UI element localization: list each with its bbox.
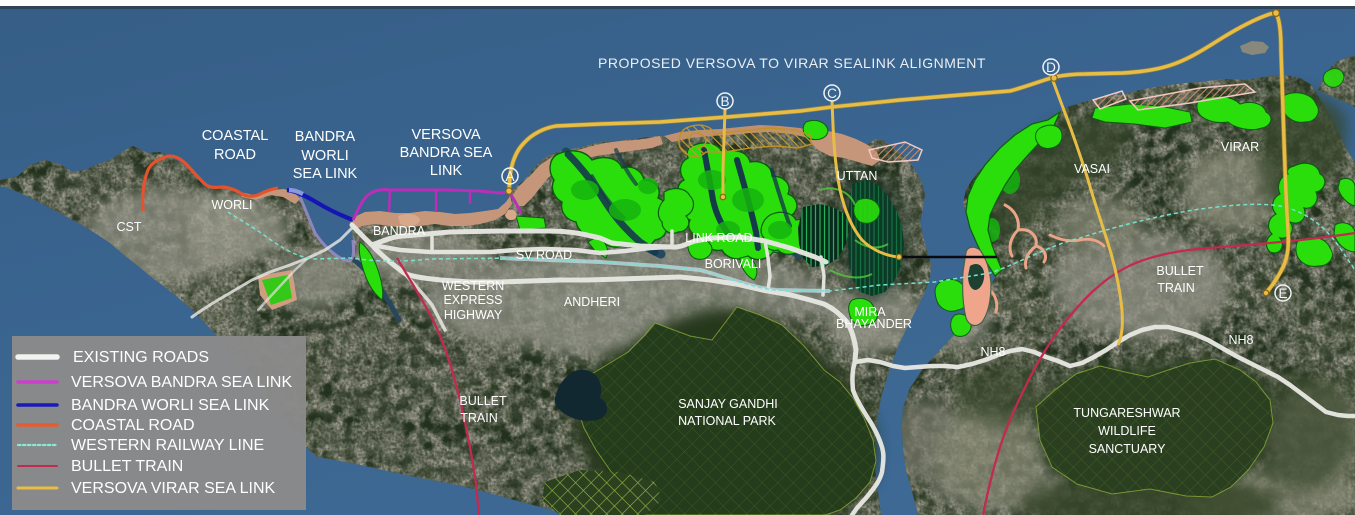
svg-text:PROPOSED VERSOVA TO VIRAR SEAL: PROPOSED VERSOVA TO VIRAR SEALINK ALIGNM… (598, 55, 986, 71)
svg-text:BULLET TRAIN: BULLET TRAIN (71, 458, 183, 475)
svg-text:VASAI: VASAI (1074, 162, 1110, 176)
svg-text:WORLI: WORLI (212, 198, 253, 212)
svg-text:VERSOVA BANDRA SEA LINK: VERSOVA BANDRA SEA LINK (71, 374, 292, 391)
svg-text:BANDRA: BANDRA (373, 224, 426, 238)
svg-text:VERSOVA: VERSOVA (411, 127, 480, 143)
svg-text:ANDHERI: ANDHERI (564, 295, 620, 309)
svg-text:SEA LINK: SEA LINK (293, 166, 358, 182)
svg-text:TRAIN: TRAIN (460, 411, 498, 425)
svg-text:D: D (1046, 60, 1056, 75)
svg-text:BULLET: BULLET (459, 394, 507, 408)
svg-text:WORLI: WORLI (301, 148, 349, 164)
svg-text:EXISTING ROADS: EXISTING ROADS (73, 349, 209, 366)
svg-text:BULLET: BULLET (1156, 264, 1204, 278)
svg-text:HIGHWAY: HIGHWAY (444, 308, 503, 322)
svg-text:LINK ROAD: LINK ROAD (685, 231, 752, 245)
svg-text:CST: CST (117, 220, 142, 234)
svg-text:TRAIN: TRAIN (1157, 281, 1195, 295)
svg-text:C: C (827, 86, 837, 101)
svg-text:BHAYANDER: BHAYANDER (836, 317, 912, 331)
svg-text:BANDRA WORLI SEA LINK: BANDRA WORLI SEA LINK (71, 397, 270, 414)
svg-text:TUNGARESHWAR: TUNGARESHWAR (1073, 406, 1180, 420)
svg-text:SANCTUARY: SANCTUARY (1089, 442, 1167, 456)
svg-text:A: A (505, 169, 514, 184)
svg-text:NH8: NH8 (980, 345, 1005, 359)
svg-text:UTTAN: UTTAN (837, 169, 878, 183)
svg-text:SV ROAD: SV ROAD (516, 248, 572, 262)
svg-text:NATIONAL PARK: NATIONAL PARK (678, 414, 776, 428)
svg-text:WESTERN: WESTERN (442, 279, 505, 293)
svg-text:ROAD: ROAD (214, 147, 256, 163)
svg-text:BANDRA SEA: BANDRA SEA (400, 145, 493, 161)
svg-text:E: E (1278, 286, 1287, 301)
svg-text:VERSOVA VIRAR SEA LINK: VERSOVA VIRAR SEA LINK (71, 480, 276, 497)
svg-text:LINK: LINK (430, 163, 463, 179)
svg-text:BORIVALI: BORIVALI (705, 257, 762, 271)
svg-text:COASTAL ROAD: COASTAL ROAD (71, 417, 195, 434)
svg-text:B: B (720, 94, 729, 109)
svg-text:EXPRESS: EXPRESS (443, 293, 502, 307)
svg-text:VIRAR: VIRAR (1221, 140, 1259, 154)
svg-text:SANJAY GANDHI: SANJAY GANDHI (678, 397, 778, 411)
svg-text:BANDRA: BANDRA (295, 129, 356, 145)
svg-text:COASTAL: COASTAL (202, 128, 269, 144)
svg-text:NH8: NH8 (1228, 333, 1253, 347)
svg-text:WILDLIFE: WILDLIFE (1098, 424, 1156, 438)
svg-text:WESTERN RAILWAY LINE: WESTERN RAILWAY LINE (71, 437, 264, 454)
